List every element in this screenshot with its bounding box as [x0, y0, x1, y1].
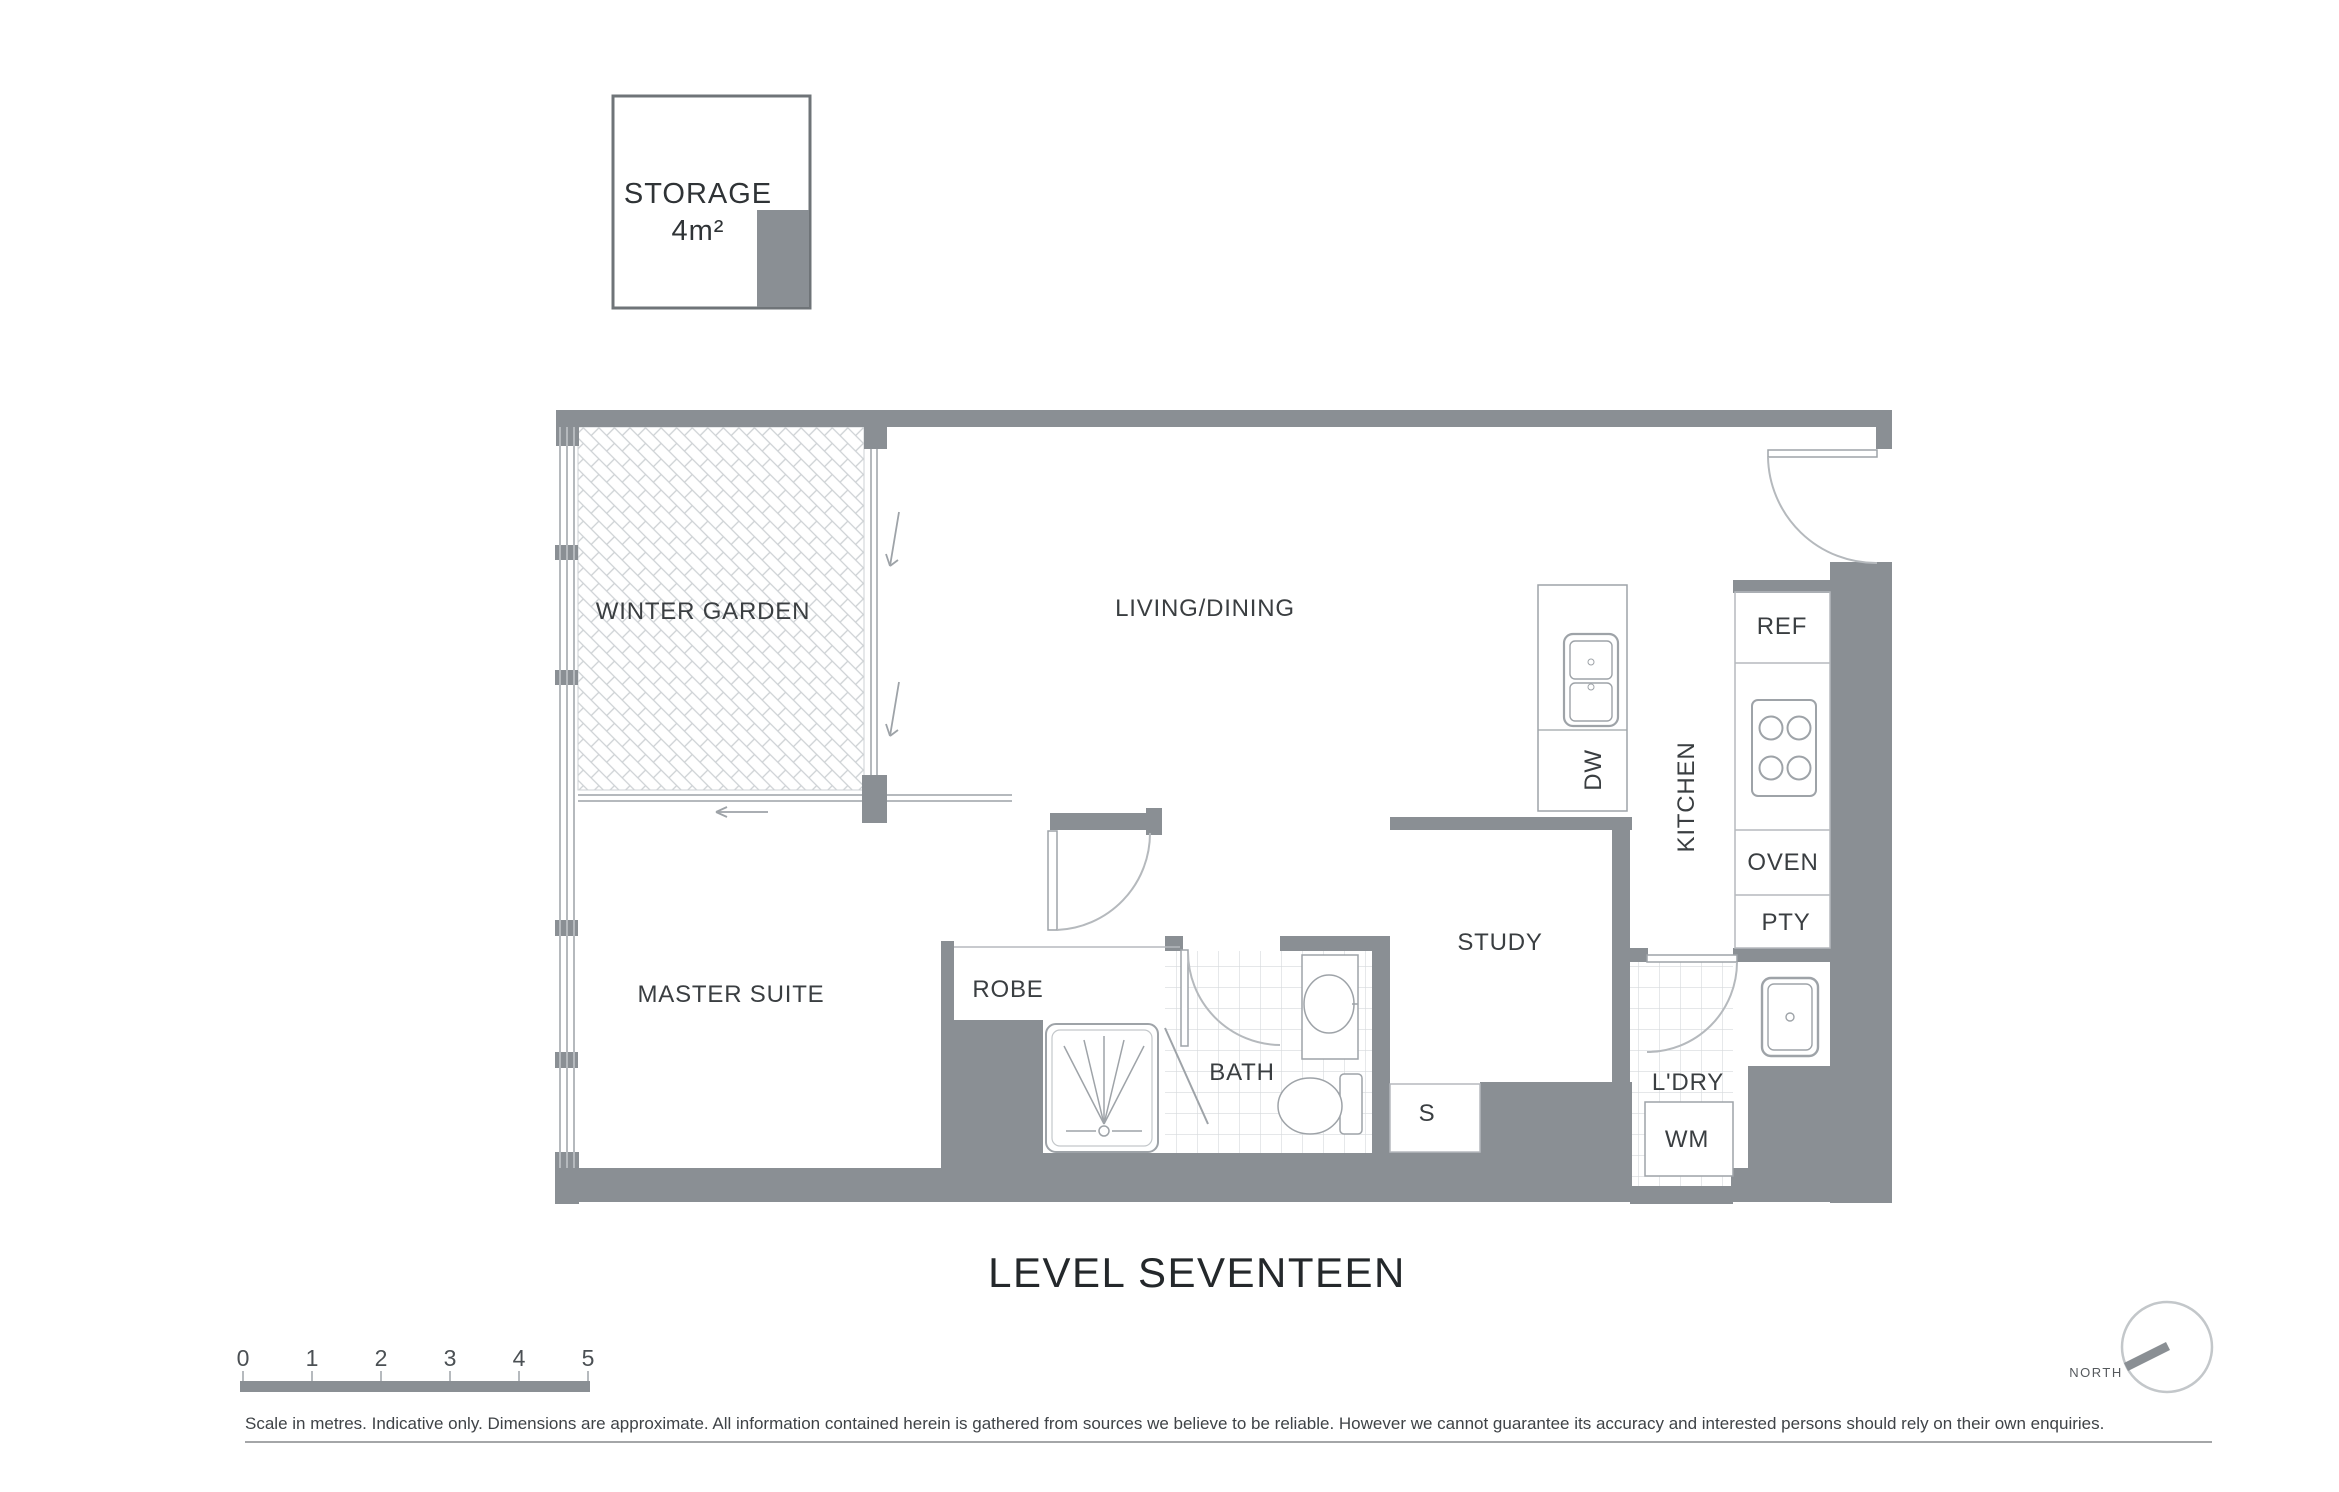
room-label-living-dining: LIVING/DINING — [1115, 595, 1295, 622]
plan-title: LEVEL SEVENTEEN — [988, 1249, 1406, 1296]
scale-tick-label-4: 4 — [513, 1345, 526, 1371]
wall-kitchen-top — [1733, 580, 1832, 593]
storage-gray-block — [757, 210, 809, 307]
wall-study-right — [1612, 817, 1630, 1084]
wall-under-s-closet — [1390, 1150, 1482, 1172]
wall-top — [556, 410, 1892, 427]
scale-tick-label-1: 1 — [306, 1345, 319, 1371]
wall-wg-post-bottom — [862, 775, 887, 823]
room-label-s-closet: S — [1419, 1100, 1436, 1127]
room-label-laundry: L'DRY — [1652, 1069, 1724, 1096]
storage-box: STORAGE 4m² — [613, 96, 810, 308]
wall-right-upper — [1876, 427, 1892, 449]
scale-tick-label-3: 3 — [444, 1345, 457, 1371]
room-label-winter-garden: WINTER GARDEN — [596, 598, 810, 625]
wall-bath-right — [1372, 936, 1390, 1166]
appliance-label-dw: DW — [1580, 749, 1607, 791]
wall-study-mass — [1480, 1082, 1632, 1172]
north-label: NORTH — [2069, 1365, 2122, 1380]
wall-master-door-cap — [1146, 808, 1162, 835]
room-label-study: STUDY — [1457, 929, 1542, 956]
wall-bath-top-right — [1280, 936, 1388, 951]
scale-tick-label-5: 5 — [582, 1345, 595, 1371]
scale-bar-rule — [240, 1381, 590, 1392]
wall-bath-top-left — [1165, 936, 1183, 951]
storage-label: STORAGE — [624, 178, 772, 210]
wall-pantry-bottom — [1733, 948, 1832, 962]
wall-bottom-right — [1731, 1168, 1832, 1202]
wall-laundry-mass — [1748, 1066, 1832, 1170]
toilet — [1278, 1074, 1362, 1134]
wall-laundry-hinge-nib — [1630, 948, 1648, 962]
wall-study-top — [1390, 817, 1632, 830]
room-label-master-suite: MASTER SUITE — [638, 981, 825, 1008]
wall-wg-post-top — [864, 427, 887, 449]
appliance-label-pty: PTY — [1761, 909, 1810, 936]
disclaimer-text: Scale in metres. Indicative only. Dimens… — [245, 1414, 2104, 1433]
wall-master-door-stub — [1050, 813, 1162, 830]
storage-area-label: 4m² — [672, 215, 725, 247]
wall-bottom-left — [556, 1168, 1632, 1202]
floor-plan-drawing: STORAGE 4m² WINTER GARDEN LIVING/DINING … — [0, 0, 2339, 1492]
appliance-label-oven: OVEN — [1747, 849, 1818, 876]
appliance-label-ref: REF — [1757, 613, 1807, 640]
appliance-label-wm: WM — [1665, 1126, 1709, 1153]
wall-bath-bottom — [1040, 1153, 1390, 1173]
wall-robe-mass — [941, 1020, 1043, 1170]
room-label-bath: BATH — [1209, 1059, 1274, 1086]
room-label-robe: ROBE — [972, 976, 1043, 1003]
vanity-basin — [1302, 955, 1358, 1059]
wall-right-core — [1830, 562, 1892, 1203]
scale-tick-label-2: 2 — [375, 1345, 388, 1371]
floor-plan-page: STORAGE 4m² WINTER GARDEN LIVING/DINING … — [0, 0, 2339, 1492]
room-label-kitchen: KITCHEN — [1673, 742, 1700, 853]
wall-robe-left — [941, 941, 954, 1023]
scale-tick-label-0: 0 — [237, 1345, 250, 1371]
wall-bottom-under-laundry — [1630, 1186, 1733, 1204]
